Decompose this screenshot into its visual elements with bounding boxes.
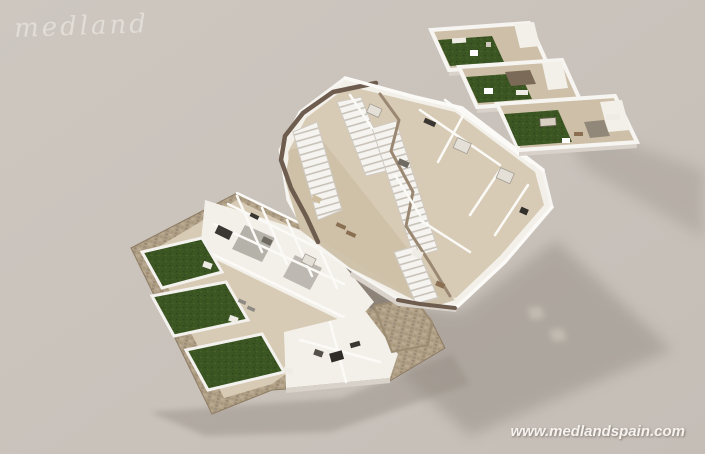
render-canvas: medland www.medlandspain.com	[0, 0, 705, 454]
roof-terrace	[497, 96, 637, 156]
website-watermark: www.medlandspain.com	[511, 423, 685, 440]
floorplan-scene	[0, 0, 705, 454]
